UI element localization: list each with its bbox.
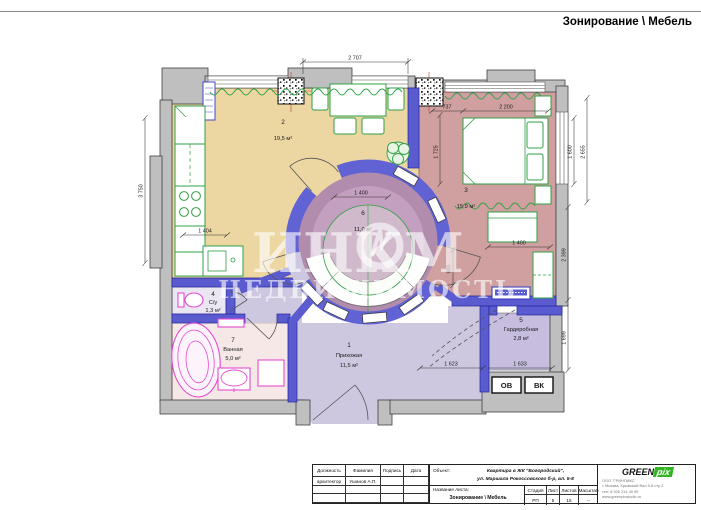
dim-bed-width: 2 200 (499, 105, 513, 111)
kitchen-counter-3 (175, 252, 203, 276)
svg-text:2: 2 (281, 119, 285, 126)
object-text: Квартира в ЖК "Богородский", ул. Маршала… (456, 468, 595, 483)
chair (362, 118, 384, 134)
svg-text:С/у: С/у (209, 300, 218, 306)
cell-surname: Ушанов А.П. (346, 477, 381, 486)
dim-top: 2 707 (348, 56, 362, 62)
watermark-text-3: НЕДВИЖИМОСТЬ (218, 275, 518, 304)
object-line-1: Квартира в ЖК "Богородский", (456, 468, 595, 476)
col-date-header: Дата (404, 465, 429, 477)
object-line-2: ул. Маршала Рокоссовского б-р, вл. 5-8 (456, 476, 595, 484)
logo-company-info: ООО "ГРИНПИКС" г. Москва, Крымский Вал 5… (602, 478, 693, 500)
svg-text:2,8 м²: 2,8 м² (513, 336, 528, 342)
sheet-name-value: Зонирование \ Мебель (432, 495, 524, 501)
scale-value: -- (579, 495, 598, 505)
wall-bottom-left (160, 400, 305, 414)
cell-empty (346, 494, 381, 503)
cell-empty (313, 486, 346, 494)
title-block: Должность Фамилия Подпись Дата архитекто… (312, 464, 696, 504)
col-position-header: Должность (313, 465, 346, 477)
dim-lounge-opening: 1 400 (354, 191, 368, 197)
window-bedroom-top (445, 82, 545, 92)
wall-kitchen-bedroom (408, 88, 419, 168)
svg-text:3: 3 (464, 187, 468, 194)
washing-machine (258, 360, 284, 386)
cell-signature (381, 477, 404, 486)
title-block-logo: GREENpix ООО "ГРИНПИКС" г. Москва, Крымс… (597, 465, 697, 503)
toilet-bowl (185, 293, 203, 307)
sink-unit (203, 246, 243, 276)
entrance-jamb-left (296, 400, 310, 425)
svg-text:6: 6 (361, 210, 365, 217)
cell-empty (404, 494, 429, 503)
stage-header: Стадия (525, 486, 547, 495)
window-kitchen-left (208, 76, 288, 88)
dim-kitchen-wall: 3 750 (139, 184, 145, 198)
wall-bath-hall (288, 318, 297, 402)
stove (175, 186, 205, 226)
dim-kitchen-counter: 1 404 (198, 229, 212, 235)
dim-hall-opening: 1 623 (444, 362, 458, 368)
svg-text:5,0 м²: 5,0 м² (225, 356, 240, 362)
wall-wardrobe-top-b (517, 306, 562, 315)
dim-window-inner: 1 600 (568, 145, 574, 159)
bath-sink-cabinet (218, 368, 250, 390)
dining-table (330, 84, 386, 116)
wall-bottom-right (390, 400, 486, 414)
sheets-value: 15 (560, 495, 579, 505)
company-website: www.greenpixstudio.ru (602, 494, 693, 499)
title-block-signatures: Должность Фамилия Подпись Дата архитекто… (313, 465, 429, 503)
svg-text:7: 7 (231, 337, 235, 344)
svg-text:15,9 м²: 15,9 м² (457, 204, 476, 210)
dim-wardrobe-width: 1 633 (513, 362, 527, 368)
shaft-ov-label: ОВ (501, 381, 513, 390)
object-label: Объект: (433, 468, 450, 473)
svg-text:19,5 м²: 19,5 м² (274, 136, 293, 142)
svg-text:1: 1 (347, 342, 351, 349)
sheet-name-label: Название листа: (433, 487, 469, 492)
svg-text:1,3 м²: 1,3 м² (205, 308, 220, 314)
dim-bed-length: 1 725 (434, 145, 440, 159)
object-row: Объект: Квартира в ЖК "Богородский", ул.… (430, 465, 597, 486)
cell-empty (346, 486, 381, 494)
col-signature-header: Подпись (381, 465, 404, 477)
wc-fixtures (178, 293, 203, 307)
pillow (527, 122, 543, 148)
svg-text:Прихожая: Прихожая (336, 353, 362, 359)
cell-date (404, 477, 429, 486)
svg-text:Гардеробная: Гардеробная (504, 327, 538, 333)
window-bedroom-right (556, 112, 568, 184)
sheet-value: 5 (547, 495, 560, 505)
fridge (175, 106, 205, 144)
greenpix-logo: GREENpix (602, 467, 693, 477)
title-block-main: Объект: Квартира в ЖК "Богородский", ул.… (429, 465, 597, 503)
toilet-tank (178, 293, 184, 307)
cell-empty (381, 486, 404, 494)
logo-text-pix: pix (653, 467, 674, 477)
bath-shelf (218, 319, 244, 327)
cell-empty (313, 494, 346, 503)
dim-wardrobe-height: 1 699 (562, 331, 568, 345)
cell-empty (404, 486, 429, 494)
dim-window-outer: 2 655 (581, 145, 587, 159)
chair (334, 118, 356, 134)
drawing-sheet: Зонирование \ Мебель (0, 0, 701, 510)
shaft-vk-label: ВК (534, 381, 544, 390)
pillow (527, 154, 543, 180)
stage-value: РП (525, 495, 547, 505)
nightstand-top (535, 96, 551, 116)
wall-left-step (150, 156, 162, 268)
svg-text:5: 5 (519, 317, 523, 324)
wall-top-left-block (162, 68, 208, 104)
sheets-header: Листов (560, 486, 579, 495)
floor-plan: ОВ ВК 2 19,5 м² 3 15,9 м² 6 11,0 м² 1 Пр… (0, 0, 701, 510)
dim-bed-offset: 737 (443, 105, 452, 111)
column-left (278, 78, 304, 104)
svg-text:Ванная: Ванная (223, 347, 242, 353)
cell-empty (381, 494, 404, 503)
svg-text:4: 4 (211, 291, 215, 298)
cell-position: архитектор (313, 477, 346, 486)
logo-text-green: GREEN (622, 467, 654, 477)
col-surname-header: Фамилия (346, 465, 381, 477)
sheet-header: Лист (547, 486, 560, 495)
column-right (416, 78, 443, 106)
nightstand-bottom (535, 186, 551, 204)
svg-text:11,5 м²: 11,5 м² (340, 363, 358, 369)
dim-right-lower: 2 399 (562, 248, 568, 262)
stage-table: Стадия Лист Листов Масштаб РП 5 15 -- (524, 486, 597, 505)
bedroom-bench (488, 212, 537, 242)
scale-header: Масштаб (579, 486, 598, 495)
sheet-row: Название листа: Зонирование \ Мебель Ста… (430, 486, 597, 505)
dim-bench-width: 1 400 (512, 241, 526, 247)
